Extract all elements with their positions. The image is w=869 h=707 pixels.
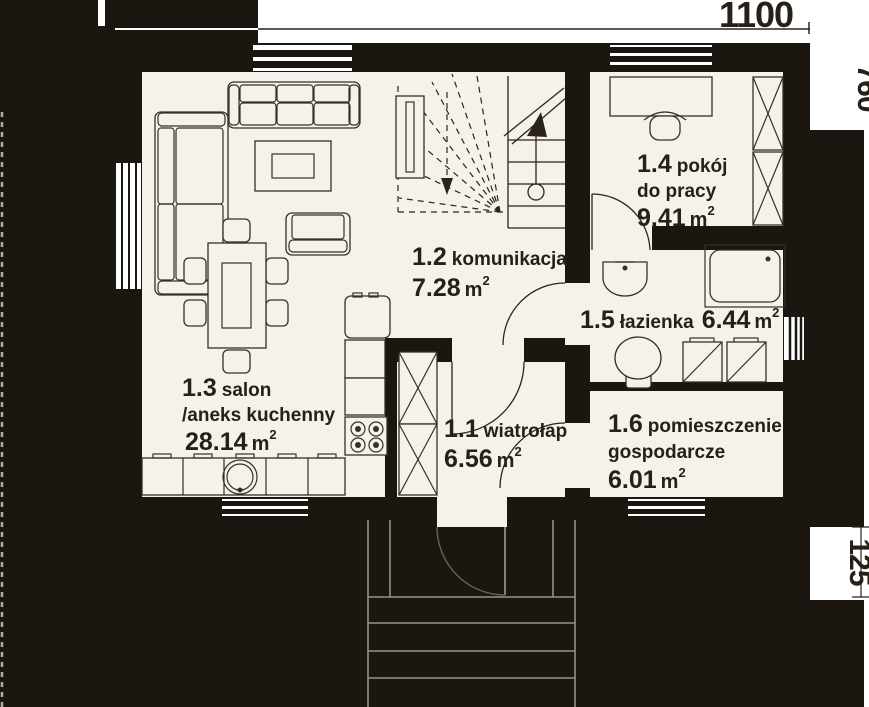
window-salon-left [116, 163, 141, 289]
window-salon-top [253, 45, 352, 71]
bathroom-sink [603, 262, 647, 296]
label-utility-2: gospodarcze [608, 442, 725, 463]
dimension-width: 1100 [719, 0, 793, 35]
dimension-right-lower: 125 [843, 538, 869, 585]
coffee-table [255, 141, 331, 191]
kitchen-cabinet [345, 378, 385, 415]
armchair [286, 213, 350, 255]
window-bath-right [784, 317, 804, 360]
dimension-right-upper: 760 [851, 64, 869, 111]
kitchen-column [345, 293, 390, 455]
label-study-2: do pracy [637, 181, 717, 202]
shower [705, 245, 785, 307]
window-kitchen-bottom [222, 499, 308, 520]
desk-chair [650, 116, 680, 140]
stair-handrail [396, 96, 424, 178]
sofa-three-seat [228, 82, 360, 128]
window-utility-bottom [628, 499, 705, 520]
kitchen-cabinet [345, 340, 385, 378]
dryer [727, 338, 766, 382]
washing-machine [683, 338, 722, 382]
kitchen-counter [142, 454, 345, 495]
entrance-opening [437, 495, 507, 527]
floor-plan: 1.3salon /aneks kuchenny 28.14m2 1.2komu… [0, 0, 869, 707]
stove [345, 417, 387, 455]
wardrobe-hall [399, 352, 437, 495]
fridge [345, 293, 390, 338]
label-salon-2: /aneks kuchenny [182, 405, 336, 426]
floor-plan-drawing: 1.3salon /aneks kuchenny 28.14m2 1.2komu… [0, 0, 869, 707]
window-study-top [610, 45, 712, 71]
